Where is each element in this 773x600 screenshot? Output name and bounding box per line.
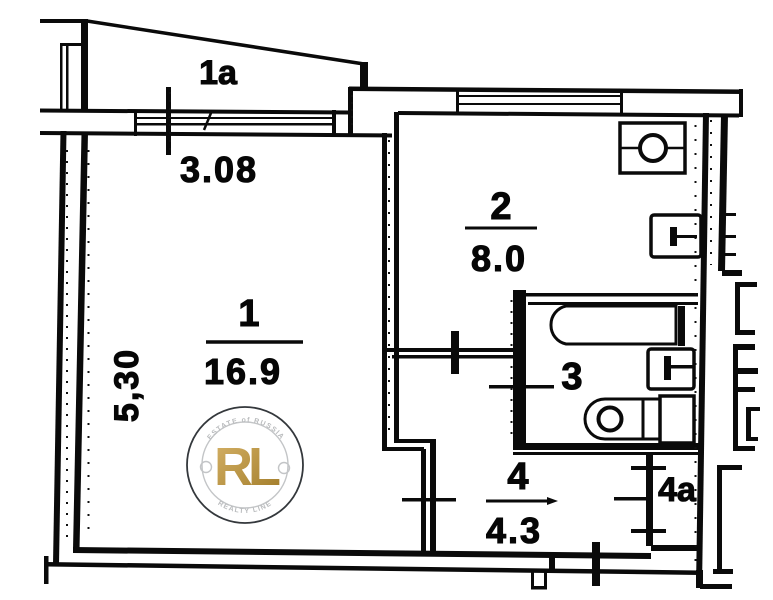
svg-text:8.0: 8.0 [471,238,527,279]
svg-text:5,30: 5,30 [108,348,146,422]
svg-text:16.9: 16.9 [204,351,282,392]
svg-text:4.3: 4.3 [486,510,542,551]
svg-text:1а: 1а [199,54,238,92]
svg-text:3.08: 3.08 [180,149,258,190]
svg-text:2: 2 [490,186,511,228]
svg-text:1: 1 [238,293,259,335]
svg-text:3: 3 [561,356,582,398]
svg-text:4а: 4а [658,471,697,509]
svg-text:RL: RL [214,437,280,497]
svg-text:4: 4 [507,456,528,498]
